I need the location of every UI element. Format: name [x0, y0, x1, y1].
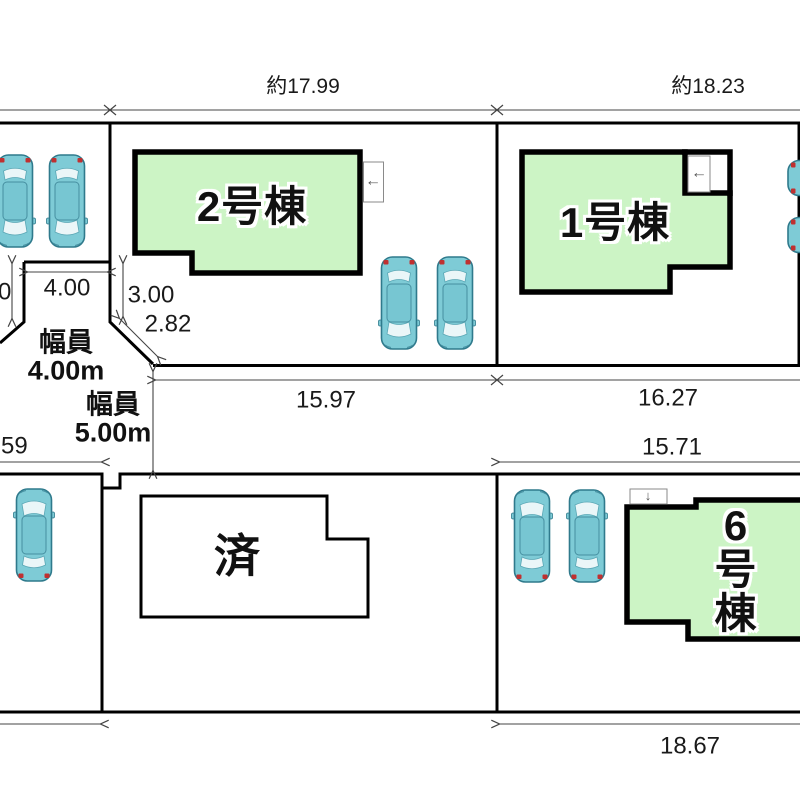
- dimension-label-18-67: 18.67: [660, 733, 720, 758]
- dimension-label-4-00: 4.00: [44, 275, 91, 300]
- dimension-label-15-97: 15.97: [296, 387, 356, 412]
- dimension-label-lot1-frontage: 約18.23: [671, 76, 745, 98]
- car-icon: [0, 155, 36, 247]
- building-1-label: 1号棟: [560, 201, 670, 245]
- road5-south-edge: [0, 474, 800, 488]
- car-icon: [512, 490, 553, 582]
- dimension-label-3-00: 3.00: [128, 282, 175, 307]
- dimension-label-2-82: 2.82: [145, 311, 192, 336]
- car-icon: [788, 158, 800, 199]
- car-icon: [435, 257, 476, 349]
- car-icon: [14, 489, 55, 581]
- building-6-label: 6号棟: [704, 504, 768, 636]
- building-6-entry-arrow-icon: ↓: [645, 489, 652, 503]
- dimension-label-15-71: 15.71: [642, 434, 702, 459]
- dimension-label-16-27: 16.27: [638, 385, 698, 410]
- building-2-entry-arrow-icon: ←: [365, 174, 381, 191]
- dimension-label-clipped-59: 59: [1, 433, 28, 458]
- building-sold-label: 済: [214, 532, 260, 580]
- car-icon: [788, 215, 800, 256]
- road-4m-width-label: 幅員 4.00m: [28, 329, 105, 386]
- building-2-label: 2号棟: [197, 185, 307, 229]
- car-icon: [47, 155, 88, 247]
- car-icon: [567, 490, 608, 582]
- building-1-entry-arrow-icon: ←: [691, 166, 707, 183]
- car-icon: [379, 257, 420, 349]
- site-plan: 約17.99 約18.23 2号棟 1号棟 6号棟 済 4.00 0 3.00 …: [0, 0, 800, 800]
- dimension-label-lot2-frontage: 約17.99: [266, 76, 340, 98]
- road-5m-width-label: 幅員 5.00m: [75, 391, 152, 448]
- dimension-label-clipped-left: 0: [0, 279, 11, 304]
